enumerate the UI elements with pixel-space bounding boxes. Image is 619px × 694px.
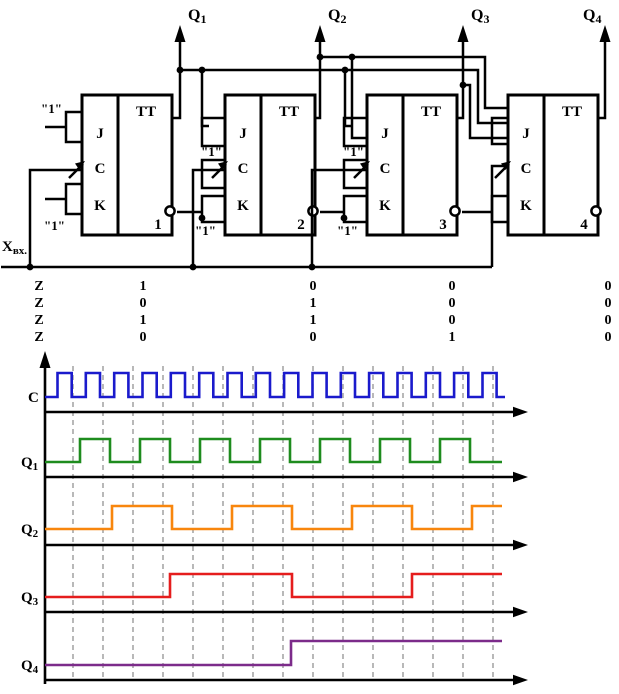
q2-output-arrow [315, 25, 326, 42]
state-table-cell-r3c4: 0 [449, 313, 456, 328]
logic-one-label-2: "1" [44, 218, 65, 233]
state-table-cell-r2c5: 0 [605, 296, 612, 311]
timing-signal-label-4-sub: 3 [33, 596, 39, 608]
state-table-cell-r1c4: 0 [449, 279, 456, 294]
timing-signal-label-1-base: C [28, 390, 39, 406]
q4-output-arrow [600, 25, 611, 42]
wire-junction-dot [342, 67, 349, 74]
q1-output-arrow [175, 25, 186, 42]
flip-flop-1-type-label: TT [136, 104, 156, 120]
logic-one-label-4: "1" [195, 223, 216, 238]
timing-signal-label-4-base: Q [21, 590, 33, 606]
input-connector-bracket-1 [66, 112, 82, 142]
state-table-cell-r3c1: Z [34, 313, 43, 328]
q4-output-label-base: Q [583, 7, 595, 24]
q2-output-label-base: Q [328, 7, 340, 24]
wire-junction-dot [349, 54, 356, 61]
flip-flop-1-inverted-output-circle [165, 206, 174, 215]
logic-one-label-3: "1" [201, 144, 222, 159]
wire-junction-dot [190, 264, 197, 271]
timing-signal-label-2-base: Q [21, 455, 33, 471]
timing-signal-label-2: Q1 [21, 455, 38, 473]
clock-to-ff3-wire [312, 170, 367, 267]
clock-to-ff4-wire [492, 166, 508, 267]
flip-flop-2-pin-c-label: C [238, 161, 249, 177]
timing-axis-arrow-3 [513, 540, 528, 551]
timing-signal-label-2-sub: 1 [33, 461, 39, 473]
flip-flop-2-type-label: TT [279, 104, 299, 120]
timing-signal-q2-waveform [45, 506, 502, 529]
q3-output-label: Q3 [471, 7, 489, 26]
flip-flop-3-pin-k-label: K [379, 198, 391, 214]
q3-output-arrow [458, 25, 469, 42]
flip-flop-2-number: 2 [297, 217, 305, 233]
logic-one-label-1: "1" [41, 101, 62, 116]
logic-one-label-6: "1" [337, 223, 358, 238]
clock-to-ff2-wire [193, 170, 225, 267]
flip-flop-4-pin-k-label: K [520, 198, 532, 214]
q1-output-label: Q1 [188, 7, 206, 26]
flip-flop-4-inverted-output-circle [591, 206, 600, 215]
q2-output-label: Q2 [328, 7, 346, 26]
clock-input-label: Xвх. [2, 239, 27, 257]
flip-flop-3-number: 3 [439, 217, 447, 233]
wire-junction-dot [27, 264, 34, 271]
timing-signal-label-3: Q2 [21, 522, 39, 540]
wire-junction-dot [309, 264, 316, 271]
state-table-cell-r4c1: Z [34, 330, 43, 345]
flip-flop-4-pin-c-label: C [521, 161, 532, 177]
timing-signal-label-4: Q3 [21, 590, 39, 608]
input-connector-bracket-2 [66, 184, 82, 214]
state-table-cell-r2c3: 1 [310, 296, 317, 311]
timing-axis-arrow-2 [513, 472, 528, 483]
q3-output-label-sub: 3 [483, 12, 489, 26]
timing-signal-q4-waveform [45, 641, 502, 665]
state-table-cell-r2c2: 0 [140, 296, 147, 311]
timing-signal-label-3-sub: 2 [33, 528, 39, 540]
q3-output-label-base: Q [471, 7, 483, 24]
state-table-cell-r4c2: 0 [140, 330, 147, 345]
state-table-cell-r1c2: 1 [140, 279, 147, 294]
jk-counter-schematic-page: TTJCK1TTJCK2TTJCK3TTJCK4Q1Q2Q3Q4"1""1""1… [0, 0, 619, 694]
state-table-cell-r3c5: 0 [605, 313, 612, 328]
jk-counter-diagram: TTJCK1TTJCK2TTJCK3TTJCK4Q1Q2Q3Q4"1""1""1… [0, 0, 619, 694]
wire-junction-dot [317, 54, 324, 61]
timing-signal-label-3-base: Q [21, 522, 33, 538]
wire-junction-dot [177, 67, 184, 74]
flip-flop-3-inverted-output-circle [450, 206, 459, 215]
q4-output-label-sub: 4 [595, 12, 601, 26]
timing-signal-label-5-base: Q [21, 658, 33, 674]
wire-junction-dot [199, 215, 206, 222]
flip-flop-2-pin-k-label: K [237, 198, 249, 214]
state-table-cell-r1c1: Z [34, 279, 43, 294]
flip-flop-4-pin-j-label: J [522, 126, 530, 142]
timing-signal-label-5: Q4 [21, 658, 39, 676]
input-connector-bracket-8 [344, 196, 367, 222]
flip-flop-3-type-label: TT [421, 104, 441, 120]
state-table-cell-r3c3: 1 [310, 313, 317, 328]
timing-signal-c-waveform [45, 373, 505, 397]
flip-flop-3-pin-j-label: J [381, 126, 389, 142]
state-table-cell-r1c3: 0 [310, 279, 317, 294]
timing-signal-label-1: C [28, 390, 39, 406]
q1-output-label-base: Q [188, 7, 200, 24]
input-connector-bracket-10 [492, 196, 508, 222]
flip-flop-1-pin-c-label: C [95, 161, 106, 177]
state-table-cell-r4c5: 0 [605, 330, 612, 345]
state-table-cell-r4c4: 1 [449, 330, 456, 345]
logic-one-label-5: "1" [343, 144, 364, 159]
state-table-cell-r1c5: 0 [605, 279, 612, 294]
state-table-cell-r3c2: 1 [140, 313, 147, 328]
wire-junction-dot [341, 215, 348, 222]
timing-signal-label-5-sub: 4 [33, 664, 39, 676]
flip-flop-2-pin-j-label: J [239, 126, 247, 142]
timing-vertical-axis-arrow [40, 351, 51, 368]
clock-input-label-sub: вх. [13, 245, 27, 257]
wire-junction-dot [199, 67, 206, 74]
flip-flop-1-number: 1 [154, 217, 162, 233]
state-table-cell-r2c4: 0 [449, 296, 456, 311]
clock-input-label-base: X [2, 239, 13, 255]
input-connector-bracket-5 [202, 196, 225, 222]
flip-flop-3-pin-c-label: C [380, 161, 391, 177]
state-table-cell-r4c3: 0 [310, 330, 317, 345]
q1-output-label-sub: 1 [200, 12, 206, 26]
timing-axis-arrow-4 [513, 607, 528, 618]
input-connector-bracket-6 [344, 118, 367, 146]
timing-axis-arrow-1 [513, 407, 528, 418]
wire-junction-dot [460, 82, 467, 89]
flip-flop-4-type-label: TT [562, 104, 582, 120]
q2-output-label-sub: 2 [340, 12, 346, 26]
flip-flop-1-pin-j-label: J [96, 126, 104, 142]
q4-output-label: Q4 [583, 7, 601, 26]
flip-flop-1-pin-k-label: K [94, 198, 106, 214]
flip-flop-4-number: 4 [580, 217, 588, 233]
input-connector-bracket-3 [202, 118, 225, 146]
timing-axis-arrow-5 [513, 675, 528, 686]
state-table-cell-r2c1: Z [34, 296, 43, 311]
